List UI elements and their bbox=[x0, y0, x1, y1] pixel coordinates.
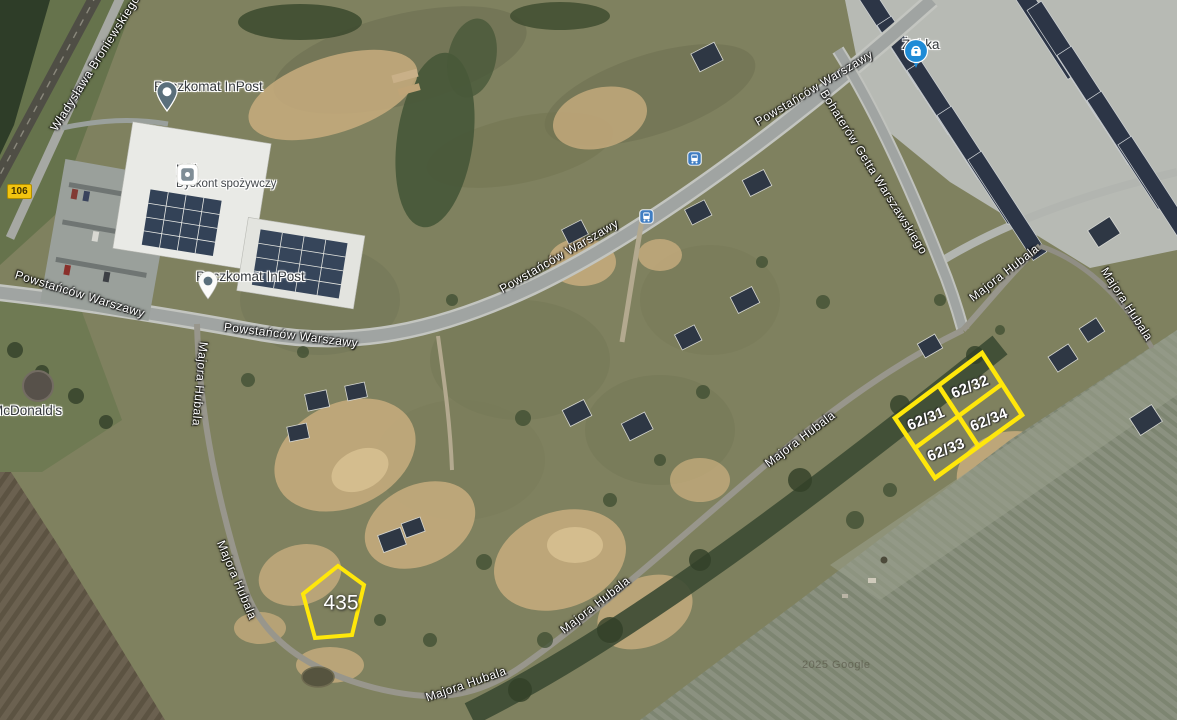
lidl-store-icon bbox=[176, 163, 199, 186]
map-copyright-watermark: 2025 Google bbox=[802, 660, 871, 671]
bus-stop-icon-upper[interactable] bbox=[687, 151, 702, 166]
poi-paczkomat-inpost-top[interactable]: Paczkomat InPost bbox=[154, 80, 263, 95]
poi-paczkomat-inpost-lower[interactable]: Paczkomat InPost bbox=[196, 270, 305, 285]
map-canvas[interactable]: Władysława Broniewskiego Powstańców Wars… bbox=[0, 0, 1177, 720]
poi-label-mcdonalds: McDonald's bbox=[0, 404, 62, 419]
poi-zabka[interactable]: Żabka bbox=[902, 38, 940, 53]
poi-mcdonalds[interactable]: McDonald's bbox=[0, 404, 62, 419]
inpost-pin-icon-white bbox=[196, 270, 220, 300]
poi-lidl[interactable]: Lidl Dyskont spożywczy bbox=[176, 163, 276, 192]
parcel-435-outline bbox=[303, 566, 364, 638]
zabka-pin-icon bbox=[902, 38, 930, 71]
inpost-pin-icon bbox=[154, 80, 180, 112]
bus-stop-icon-lower[interactable] bbox=[639, 209, 654, 224]
road-number-badge: 106 bbox=[7, 184, 32, 199]
